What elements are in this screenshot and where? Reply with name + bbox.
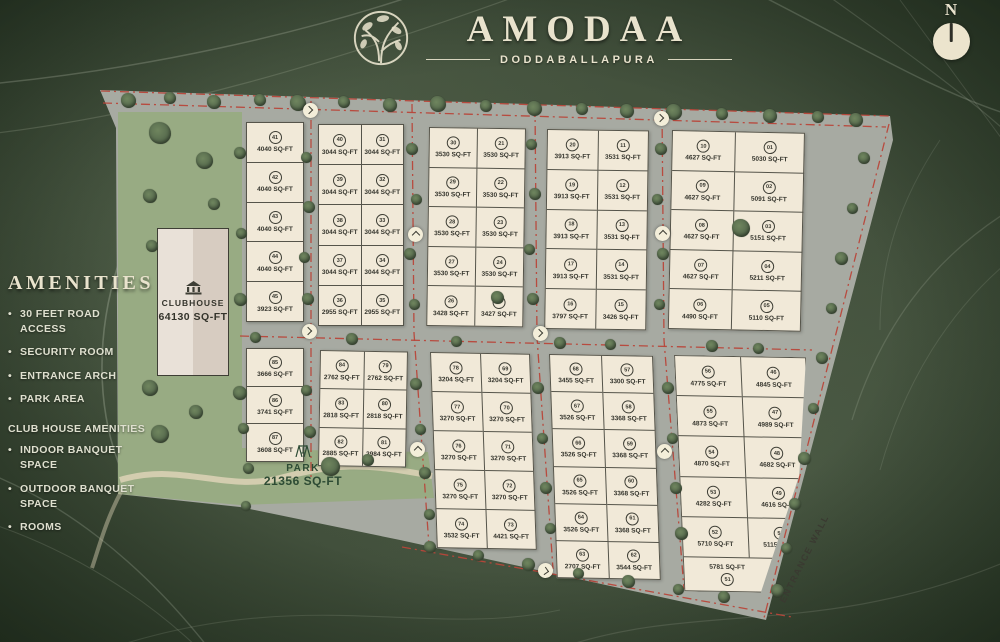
compass: N [925, 0, 977, 60]
plot-area: 4873 SQ-FT [692, 420, 728, 428]
plot-number: 79 [379, 360, 392, 373]
plot-cell-05: 055110 SQ-FT [731, 290, 801, 331]
plot-number: 25 [492, 296, 505, 309]
plot-area: 3530 SQ-FT [483, 152, 519, 159]
plot-cell-59: 593368 SQ-FT [604, 429, 656, 467]
plot-number: 04 [761, 260, 774, 273]
plot-number: 15 [614, 299, 627, 312]
plot-number: 27 [445, 255, 458, 268]
plot-cell-22: 223530 SQ-FT [477, 167, 525, 207]
plot-cell-39: 393044 SQ-FT [319, 164, 361, 204]
plot-column: 564775 SQ-FT554873 SQ-FT544870 SQ-FT5342… [675, 356, 748, 557]
plot-area: 3044 SQ-FT [364, 269, 400, 276]
playground-icon [294, 445, 312, 457]
plot-number: 52 [708, 526, 722, 539]
plot-area: 2707 SQ-FT [565, 563, 601, 571]
plot-block-e: 104627 SQ-FT094627 SQ-FT084627 SQ-FT0746… [668, 130, 805, 332]
plot-area: 3300 SQ-FT [610, 378, 646, 386]
plot-cell-28: 283530 SQ-FT [428, 206, 476, 246]
plot-column: 213530 SQ-FT223530 SQ-FT233530 SQ-FT2435… [474, 129, 525, 327]
plot-number: 65 [573, 474, 586, 487]
plot-column: 792762 SQ-FT802818 SQ-FT812984 SQ-FT [361, 352, 406, 467]
plot-cell-41: 414040 SQ-FT [247, 123, 303, 162]
plot-area: 3204 SQ-FT [438, 376, 474, 384]
plot-number: 44 [269, 251, 282, 264]
plot-area: 3044 SQ-FT [322, 229, 358, 236]
plot-cell-75: 753270 SQ-FT [435, 469, 485, 509]
plot-number: 30 [447, 137, 460, 150]
plot-number: 54 [705, 446, 719, 459]
plot-area: 3913 SQ-FT [553, 273, 589, 280]
plot-cell-06: 064490 SQ-FT [669, 288, 731, 329]
plot-number: 07 [694, 259, 707, 272]
plot-cell-60: 603368 SQ-FT [605, 467, 657, 505]
plot-number: 06 [693, 298, 706, 311]
amenities-list: 30 FEET ROAD ACCESSSECURITY ROOMENTRANCE… [8, 307, 136, 407]
plot-number: 83 [335, 397, 348, 410]
plot-cell-74: 743532 SQ-FT [436, 508, 486, 548]
plot-area: 2762 SQ-FT [367, 374, 403, 382]
plot-area: 3044 SQ-FT [322, 269, 358, 276]
plot-cell-19: 193913 SQ-FT [547, 169, 597, 209]
amenity-item: 30 FEET ROAD ACCESS [8, 307, 136, 337]
amenity-item: SECURITY ROOM [8, 345, 136, 360]
plot-cell-61: 613368 SQ-FT [607, 504, 659, 542]
plot-area: 2955 SQ-FT [364, 309, 400, 316]
brand-title: AMODAA [467, 11, 692, 48]
plot-area: 4490 SQ-FT [682, 313, 718, 321]
plot-area: 3531 SQ-FT [603, 274, 639, 281]
plot-block-j: 564775 SQ-FT554873 SQ-FT544870 SQ-FT5342… [674, 355, 816, 594]
plot-area: 3270 SQ-FT [489, 416, 525, 424]
compass-north-label: N [925, 0, 977, 20]
plot-number: 86 [269, 394, 282, 407]
plot-cell-52: 525710 SQ-FT [682, 516, 748, 557]
plot-cell-78: 783204 SQ-FT [431, 353, 481, 392]
plot-area: 4627 SQ-FT [684, 194, 720, 202]
brand-subtitle: DODDABALLAPURA [500, 54, 658, 66]
plot-area: 3544 SQ-FT [616, 564, 652, 572]
plot-cell-43: 434040 SQ-FT [247, 202, 303, 242]
plot-area: 5151 SQ-FT [750, 235, 786, 243]
plot-cell-15: 153426 SQ-FT [596, 289, 646, 329]
plot-area: 3044 SQ-FT [322, 149, 358, 156]
plot-area: 3531 SQ-FT [604, 194, 640, 201]
plot-column: 573300 SQ-FT583368 SQ-FT593368 SQ-FT6033… [601, 356, 660, 579]
plot-number: 73 [504, 518, 517, 531]
plot-area: 3428 SQ-FT [433, 310, 469, 317]
plot-number: 68 [569, 362, 582, 375]
plot-cell-55: 554873 SQ-FT [677, 395, 743, 436]
plot-number: 56 [701, 365, 715, 378]
plot-cell-35: 352955 SQ-FT [362, 285, 404, 325]
plot-number: 62 [627, 549, 640, 562]
plot-area: 3526 SQ-FT [562, 489, 598, 497]
plot-area: 3923 SQ-FT [257, 306, 293, 313]
plot-area: 4682 SQ-FT [759, 462, 795, 470]
plot-area: 2984 SQ-FT [366, 451, 402, 459]
plot-number: 09 [696, 179, 709, 192]
plot-column: 303530 SQ-FT293530 SQ-FT283530 SQ-FT2735… [427, 128, 477, 326]
plot-number: 64 [574, 511, 587, 524]
plot-cell-09: 094627 SQ-FT [671, 170, 733, 211]
plot-number: 37 [333, 254, 346, 267]
plot-area: 3741 SQ-FT [257, 409, 293, 416]
plot-area: 3913 SQ-FT [554, 193, 590, 200]
plot-number: 71 [501, 440, 514, 453]
plot-cell-33: 333044 SQ-FT [362, 204, 404, 244]
plot-area: 3530 SQ-FT [434, 270, 470, 277]
plot-number: 17 [564, 258, 577, 271]
plot-cell-16: 163797 SQ-FT [545, 288, 595, 328]
plot-area: 5115 SQ-FT [763, 542, 799, 550]
plot-number: 70 [500, 401, 513, 414]
plot-cell-49: 494616 SQ-FT [746, 477, 812, 518]
plot-number: 45 [269, 291, 282, 304]
plot-cell-62: 623544 SQ-FT [608, 541, 660, 579]
plot-number: 08 [695, 219, 708, 232]
plot-number: 84 [335, 359, 348, 372]
plot-area: 2818 SQ-FT [323, 412, 359, 420]
plot-number: 61 [626, 512, 639, 525]
plot-area: 2818 SQ-FT [367, 413, 403, 421]
plot-block-d: 203913 SQ-FT193913 SQ-FT183913 SQ-FT1739… [544, 129, 649, 330]
plot-number: 48 [770, 447, 784, 460]
plot-cell-21: 213530 SQ-FT [477, 129, 525, 168]
amenity-item: ENTRANCE ARCH [8, 369, 136, 384]
plot-area: 5030 SQ-FT [752, 156, 788, 164]
plot-area: 4421 SQ-FT [493, 533, 529, 541]
plot-area: 4627 SQ-FT [683, 273, 719, 281]
plot-area: 3913 SQ-FT [553, 233, 589, 240]
plot-block-h: 783204 SQ-FT773270 SQ-FT763270 SQ-FT7532… [430, 352, 537, 550]
plot-cell-65: 653526 SQ-FT [554, 466, 606, 504]
plot-column: 683455 SQ-FT673526 SQ-FT663526 SQ-FT6535… [550, 355, 608, 578]
plot-area: 4040 SQ-FT [257, 226, 293, 233]
plot-area: 3368 SQ-FT [615, 527, 651, 535]
plot-number: 35 [376, 294, 389, 307]
plot-area: 3427 SQ-FT [481, 310, 517, 317]
plot-block-b: 403044 SQ-FT393044 SQ-FT383044 SQ-FT3730… [318, 124, 404, 326]
plot-number: 80 [378, 398, 391, 411]
plot-area: 3368 SQ-FT [614, 490, 650, 498]
plot-area: 3368 SQ-FT [611, 415, 647, 423]
plot-area: 3270 SQ-FT [492, 494, 528, 502]
club-amenities-heading: CLUB HOUSE AMENITIES [8, 423, 168, 435]
plot-number: 50 [774, 527, 788, 540]
plot-column: 313044 SQ-FT323044 SQ-FT333044 SQ-FT3430… [361, 125, 404, 325]
subtitle-rule-left [426, 59, 490, 61]
plot-area: 4040 SQ-FT [257, 146, 293, 153]
plot-number: 20 [566, 139, 579, 152]
plot-cell-13: 133531 SQ-FT [597, 209, 647, 249]
amenities-panel: AMENITIES 30 FEET ROAD ACCESSSECURITY RO… [8, 272, 168, 543]
plot-cell-01: 015030 SQ-FT [735, 132, 805, 172]
plot-cell-25: 253427 SQ-FT [475, 286, 523, 326]
plot-column: 464845 SQ-FT474989 SQ-FT484682 SQ-FT4946… [740, 357, 814, 558]
plot-number: 19 [565, 178, 578, 191]
plot-number: 59 [623, 438, 636, 451]
plot-number: 36 [333, 294, 346, 307]
plot-number: 10 [697, 140, 710, 153]
plot-number: 47 [768, 406, 782, 419]
plot-column: 203913 SQ-FT193913 SQ-FT183913 SQ-FT1739… [545, 130, 597, 329]
plot-cell-79: 792762 SQ-FT [364, 352, 407, 390]
plot-area: 2955 SQ-FT [322, 309, 358, 316]
plot-cell-48: 484682 SQ-FT [744, 437, 810, 478]
plot-cell-72: 723270 SQ-FT [485, 470, 535, 510]
brand-header: AMODAA DODDABALLAPURA [350, 6, 732, 70]
plot-number: 01 [763, 141, 776, 154]
plot-area: 3530 SQ-FT [482, 271, 518, 278]
plot-cell-58: 583368 SQ-FT [603, 392, 655, 430]
plot-number: 75 [453, 478, 466, 491]
plot-column: 113531 SQ-FT123531 SQ-FT133531 SQ-FT1435… [595, 131, 648, 330]
plot-cell-31: 313044 SQ-FT [362, 125, 404, 164]
plot-cell-76: 763270 SQ-FT [434, 430, 484, 470]
plot-number: 39 [333, 174, 346, 187]
plot-cell-53: 534282 SQ-FT [680, 476, 746, 517]
plot-cell-85: 853666 SQ-FT [247, 349, 303, 386]
plot-number: 21 [495, 137, 508, 150]
plot-number: 46 [767, 366, 781, 379]
plot-area: 3455 SQ-FT [558, 377, 594, 385]
plot-area: 3270 SQ-FT [441, 454, 477, 462]
plot-cell-57: 573300 SQ-FT [602, 356, 654, 393]
plot-number: 53 [706, 486, 720, 499]
plot-cell-12: 123531 SQ-FT [597, 170, 647, 210]
plot-cell-26: 263428 SQ-FT [427, 285, 475, 325]
plot-number: 69 [499, 362, 512, 375]
plot-number: 13 [615, 219, 628, 232]
plot-number: 76 [452, 439, 465, 452]
plot-area: 5710 SQ-FT [697, 541, 733, 549]
plot-number: 18 [565, 218, 578, 231]
plot-cell-67: 673526 SQ-FT [551, 391, 603, 429]
plot-cell-27: 273530 SQ-FT [428, 246, 476, 286]
plot-number: 55 [703, 405, 717, 418]
plot-cell-56: 564775 SQ-FT [675, 356, 741, 396]
subtitle-rule-right [668, 59, 732, 61]
plot-cell-47: 474989 SQ-FT [742, 396, 808, 437]
plot-cell-84: 842762 SQ-FT [320, 351, 363, 389]
plot-area: 4282 SQ-FT [696, 501, 732, 509]
plot-cell-70: 703270 SQ-FT [482, 392, 532, 432]
plot-number: 02 [762, 181, 775, 194]
plot-area: 5211 SQ-FT [749, 275, 785, 283]
plot-cell-17: 173913 SQ-FT [546, 248, 596, 288]
plot-area: 4616 SQ-FT [761, 502, 797, 510]
plot-block-i: 683455 SQ-FT673526 SQ-FT663526 SQ-FT6535… [549, 354, 661, 580]
plot-cell-29: 293530 SQ-FT [429, 167, 477, 207]
plot-cell-14: 143531 SQ-FT [596, 249, 646, 289]
plot-area: 3797 SQ-FT [552, 313, 588, 320]
plot-cell-81: 812984 SQ-FT [362, 427, 405, 466]
club-amenities-list: INDOOR BANQUET SPACEOUTDOOR BANQUET SPAC… [8, 443, 136, 535]
plot-number: 60 [624, 475, 637, 488]
plot-number: 16 [564, 298, 577, 311]
plot-number: 58 [622, 401, 635, 414]
plot-number: 87 [269, 432, 282, 445]
plot-number: 05 [760, 300, 773, 313]
plot-area: 3044 SQ-FT [364, 149, 400, 156]
plot-cell-04: 045211 SQ-FT [732, 250, 802, 291]
park-label: PARK 21356 SQ-FT [255, 444, 351, 488]
plot-cell-11: 113531 SQ-FT [598, 131, 648, 170]
compass-dial-icon [933, 23, 970, 60]
plot-column: 414040 SQ-FT424040 SQ-FT434040 SQ-FT4440… [247, 123, 303, 321]
plot-column: 693204 SQ-FT703270 SQ-FT713270 SQ-FT7232… [480, 354, 536, 549]
plot-number: 29 [446, 176, 459, 189]
plot-area: 3270 SQ-FT [440, 415, 476, 423]
plot-cell-64: 643526 SQ-FT [555, 503, 607, 541]
amenity-item: OUTDOOR BANQUET SPACE [8, 482, 136, 512]
plot-cell-63: 632707 SQ-FT [556, 540, 608, 578]
plot-area: 4627 SQ-FT [685, 155, 721, 163]
plot-column: 783204 SQ-FT773270 SQ-FT763270 SQ-FT7532… [431, 353, 486, 548]
plot-number: 26 [444, 295, 457, 308]
plot-cell-37: 373044 SQ-FT [319, 245, 361, 285]
plot-area: 3531 SQ-FT [604, 234, 640, 241]
plot-number: 41 [269, 131, 282, 144]
plot-area: 4870 SQ-FT [694, 460, 730, 468]
site-plan: 414040 SQ-FT424040 SQ-FT434040 SQ-FT4440… [0, 0, 1000, 642]
plot-area: 3526 SQ-FT [563, 526, 599, 534]
plot-area: 3530 SQ-FT [435, 191, 471, 198]
plot-cell-32: 323044 SQ-FT [362, 164, 404, 204]
plot-number: 51 [721, 573, 735, 586]
plot-cell-10: 104627 SQ-FT [672, 131, 734, 171]
plot-number: 22 [494, 177, 507, 190]
plot-cell-42: 424040 SQ-FT [247, 162, 303, 202]
plot-cell-86: 863741 SQ-FT [247, 386, 303, 424]
plot-area: 4989 SQ-FT [758, 421, 794, 429]
plot-column: 104627 SQ-FT094627 SQ-FT084627 SQ-FT0746… [669, 131, 735, 329]
amenity-item: INDOOR BANQUET SPACE [8, 443, 136, 473]
plot-area: 4040 SQ-FT [257, 266, 293, 273]
plot-area: 3530 SQ-FT [482, 231, 518, 238]
plot-area: 3526 SQ-FT [559, 414, 595, 422]
plot-number: 03 [762, 220, 775, 233]
clubhouse-label: CLUBHOUSE [162, 298, 225, 308]
plot-cell-18: 183913 SQ-FT [546, 209, 596, 249]
plot-area: 4845 SQ-FT [756, 381, 792, 389]
plot-number: 42 [269, 171, 282, 184]
plot-number: 38 [333, 214, 346, 227]
plot-area: 3368 SQ-FT [612, 453, 648, 461]
plot-area: 3531 SQ-FT [605, 154, 641, 161]
plot-cell-23: 233530 SQ-FT [476, 207, 524, 247]
plot-cell-77: 773270 SQ-FT [432, 391, 482, 431]
plot-area: 3530 SQ-FT [434, 231, 470, 238]
plot-area: 3530 SQ-FT [483, 192, 519, 199]
plot-area: 5110 SQ-FT [749, 314, 785, 322]
amenity-item: ROOMS [8, 520, 136, 535]
plot-number: 66 [572, 437, 585, 450]
plot-number: 85 [269, 356, 282, 369]
plot-number: 67 [570, 400, 583, 413]
plot-area: 3044 SQ-FT [364, 189, 400, 196]
plot-area: 3666 SQ-FT [257, 371, 293, 378]
plot-block-a: 414040 SQ-FT424040 SQ-FT434040 SQ-FT4440… [246, 122, 304, 322]
plot-number: 34 [376, 254, 389, 267]
plot-area: 4627 SQ-FT [684, 234, 720, 242]
plot-cell-54: 544870 SQ-FT [679, 435, 745, 476]
plot-area: 3270 SQ-FT [442, 493, 478, 501]
plot-cell-30: 303530 SQ-FT [429, 128, 477, 167]
plot-number: 43 [269, 211, 282, 224]
plot-number: 78 [449, 361, 462, 374]
plot-number: 32 [376, 174, 389, 187]
clubhouse-area: 64130 SQ-FT [158, 311, 227, 323]
plot-cell-46: 464845 SQ-FT [741, 357, 807, 397]
plot-number: 24 [493, 256, 506, 269]
amenities-heading: AMENITIES [8, 272, 168, 295]
plot-number: 12 [616, 179, 629, 192]
plot-cell-40: 403044 SQ-FT [319, 125, 361, 164]
plot-area: 5781 SQ-FT [709, 564, 745, 572]
plot-cell-45: 453923 SQ-FT [247, 281, 303, 321]
plot-area: 4040 SQ-FT [257, 186, 293, 193]
plot-area: 3526 SQ-FT [561, 452, 597, 460]
plot-cell-34: 343044 SQ-FT [362, 245, 404, 285]
plot-number: 77 [450, 400, 463, 413]
plot-area: 3426 SQ-FT [603, 313, 639, 320]
plot-number: 74 [455, 517, 468, 530]
plot-number: 28 [446, 216, 459, 229]
plot-number: 33 [376, 214, 389, 227]
clubhouse-icon [185, 281, 202, 295]
plot-number: 31 [376, 134, 389, 147]
plot-cell-03: 035151 SQ-FT [733, 211, 803, 252]
plot-cell-80: 802818 SQ-FT [363, 389, 406, 428]
plot-area: 2762 SQ-FT [324, 374, 360, 382]
plot-cell-08: 084627 SQ-FT [671, 209, 733, 250]
plot-cell-44: 444040 SQ-FT [247, 241, 303, 281]
plot-area: 3913 SQ-FT [554, 153, 590, 160]
plot-area: 4775 SQ-FT [690, 380, 726, 388]
plot-cell-38: 383044 SQ-FT [319, 204, 361, 244]
plot-block-c: 303530 SQ-FT293530 SQ-FT283530 SQ-FT2735… [426, 127, 526, 327]
plot-area: 3044 SQ-FT [322, 189, 358, 196]
plot-cell-36: 362955 SQ-FT [319, 285, 361, 325]
plot-cell-71: 713270 SQ-FT [483, 431, 533, 471]
plot-area: 3532 SQ-FT [444, 532, 480, 540]
plot-number: 63 [576, 548, 589, 561]
plot-number: 72 [503, 479, 516, 492]
plot-cell-07: 074627 SQ-FT [670, 249, 732, 290]
plot-number: 23 [494, 216, 507, 229]
plot-column: 015030 SQ-FT025091 SQ-FT035151 SQ-FT0452… [730, 132, 805, 330]
plot-number: 11 [616, 139, 629, 152]
plot-cell-66: 663526 SQ-FT [553, 428, 605, 466]
plot-area: 3270 SQ-FT [490, 455, 526, 463]
plot-area: 3044 SQ-FT [364, 229, 400, 236]
plot-cell-24: 243530 SQ-FT [476, 246, 524, 286]
plot-area: 5091 SQ-FT [751, 196, 787, 204]
plot-cell-68: 683455 SQ-FT [550, 355, 602, 392]
park-name: PARK [255, 463, 351, 474]
plot-area: 3204 SQ-FT [488, 377, 524, 385]
plot-number: 81 [378, 436, 391, 449]
plot-cell-02: 025091 SQ-FT [734, 171, 804, 212]
amenity-item: PARK AREA [8, 392, 136, 407]
plot-cell-69: 693204 SQ-FT [481, 354, 531, 393]
plot-number: 49 [772, 487, 786, 500]
plot-cell-83: 832818 SQ-FT [320, 388, 363, 427]
park-area: 21356 SQ-FT [255, 474, 351, 488]
plot-number: 57 [621, 363, 634, 376]
